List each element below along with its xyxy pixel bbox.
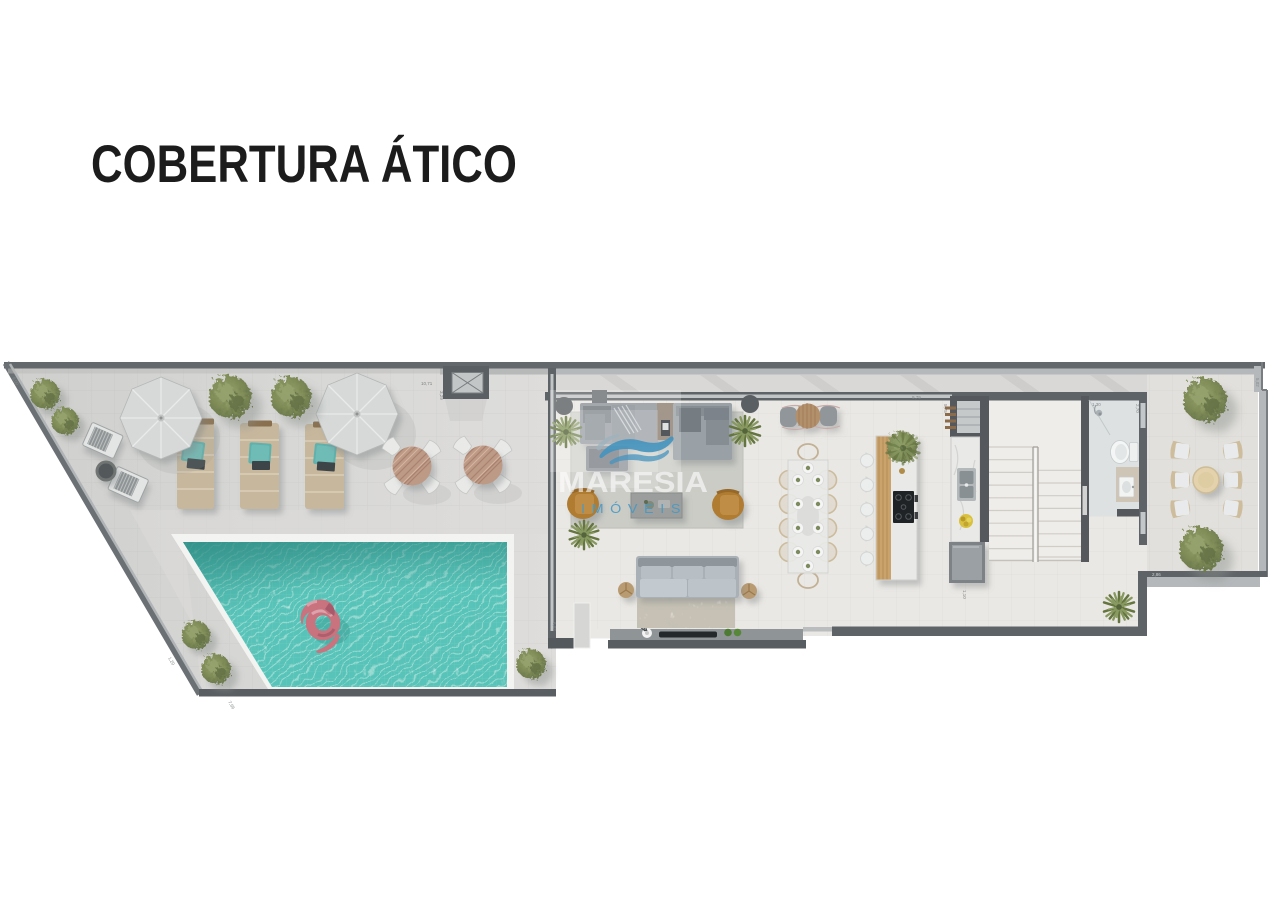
svg-text:IMÓVEIS: IMÓVEIS: [581, 501, 687, 516]
svg-text:6,02: 6,02: [552, 622, 557, 631]
svg-text:10,71: 10,71: [421, 381, 433, 386]
svg-text:2,86: 2,86: [1152, 572, 1161, 577]
svg-text:MARESIA: MARESIA: [558, 467, 708, 499]
svg-text:7,66: 7,66: [227, 700, 236, 711]
svg-text:3,29: 3,29: [439, 391, 444, 400]
svg-text:1,10: 1,10: [962, 590, 967, 599]
svg-text:5,02: 5,02: [1255, 378, 1260, 387]
svg-text:9,79: 9,79: [912, 395, 921, 400]
svg-text:1,30: 1,30: [1092, 402, 1101, 407]
